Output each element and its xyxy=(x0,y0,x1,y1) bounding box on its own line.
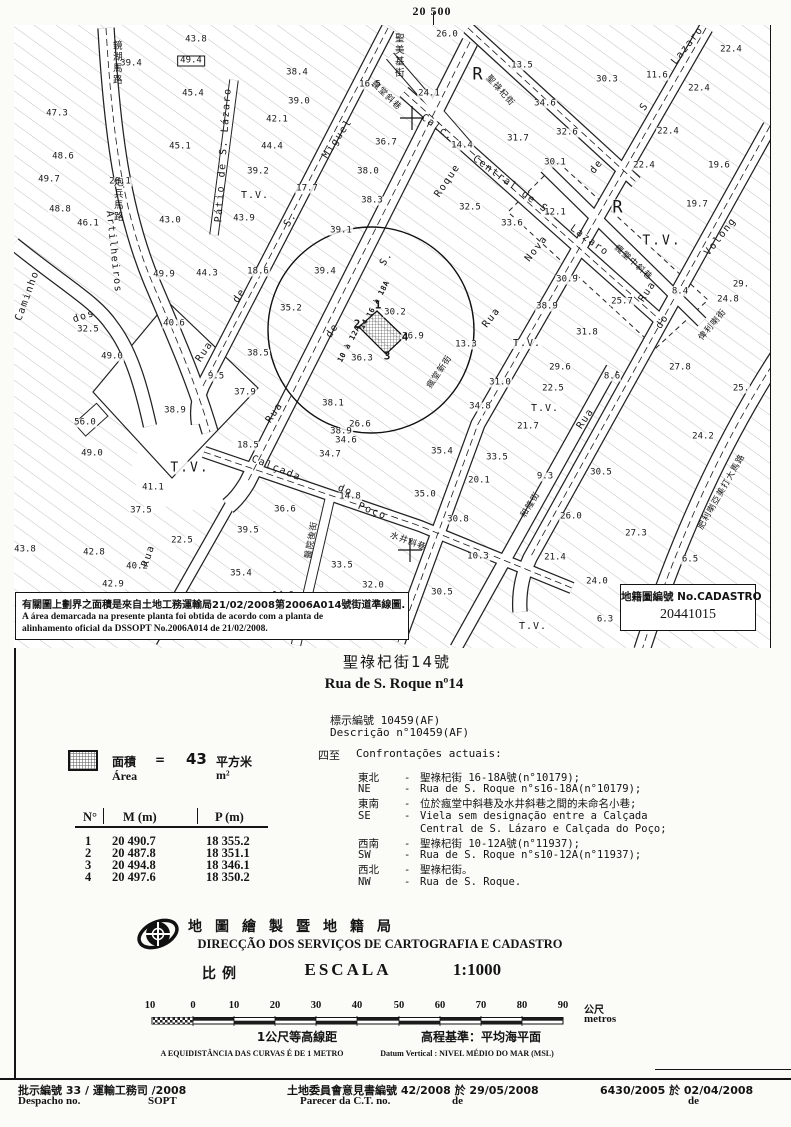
dscc-logo xyxy=(136,914,180,958)
agency-name-pt: DIRECÇÃO DOS SERVIÇOS DE CARTOGRAFIA E C… xyxy=(198,937,563,952)
footer-right-rule xyxy=(655,1069,791,1070)
parecer-label-pt: Parecer da C.T. no. xyxy=(300,1095,390,1107)
datum-note-zh: 高程基準：平均海平面 xyxy=(421,1028,541,1045)
cadastral-plan-sheet: { "frame": {"grid_top": "20 500", "grid_… xyxy=(0,0,791,1127)
scalebar-tick: 10 xyxy=(229,1000,240,1011)
confrontation-row: SW-Rua de S. Roque n°s10-12A(n°11937); xyxy=(358,849,778,862)
page-title-pt: Rua de S. Roque nº14 xyxy=(325,676,464,693)
footer-rule xyxy=(0,1078,791,1080)
confrontation-row: 西南-聖祿杞街 10-12A號(n°11937); xyxy=(358,836,778,849)
cadastro-number-box: 地籍圖編號 No.CADASTRO 20441015 xyxy=(620,584,756,631)
cadastro-label: 地籍圖編號 No.CADASTRO xyxy=(621,589,755,604)
note-line-pt2: alinhamento oficial da DSSOPT No.2006A01… xyxy=(22,623,402,635)
legend-unit-pt: m² xyxy=(216,768,230,783)
scalebar-tick: 40 xyxy=(352,1000,363,1011)
confrontation-row: 東北-聖祿杞街 16-18A號(n°10179); xyxy=(358,770,778,783)
scalebar-tick: 70 xyxy=(476,1000,487,1011)
legend-area-pt: Área xyxy=(112,769,137,784)
contour-note-zh: 1公尺等高線距 xyxy=(257,1028,337,1045)
process-ref-de: de xyxy=(688,1095,699,1107)
confrontation-row: 東南-位於瘋堂中斜巷及水井斜巷之間的未命名小巷; xyxy=(358,796,778,809)
despacho-label-pt: Despacho no. xyxy=(18,1095,80,1107)
legend-area-zh: 面積 xyxy=(112,753,136,770)
cadastro-number: 20441015 xyxy=(621,607,755,623)
confrontations-list: 東北-聖祿杞街 16-18A號(n°10179); NE-Rua de S. R… xyxy=(358,770,778,889)
scalebar-tick: 20 xyxy=(270,1000,281,1011)
page-title-zh: 聖祿杞街14號 xyxy=(343,651,451,672)
descricao-pt: Descrição n°10459(AF) xyxy=(330,726,469,739)
scalebar-tick: 90 xyxy=(558,1000,569,1011)
confrontation-row: SE-Viela sem designação entre a Calçada xyxy=(358,810,778,823)
confrontation-row: 西北-聖祿杞街。 xyxy=(358,862,778,875)
confrontation-row: NE-Rua de S. Roque n°s16-18A(n°10179); xyxy=(358,783,778,796)
datum-note-pt: Datum Vertical : NIVEL MÉDIO DO MAR (MSL… xyxy=(380,1049,554,1058)
confrontation-row: Central de S. Lázaro e Calçada do Poço; xyxy=(358,823,778,836)
scalebar-tick: 50 xyxy=(394,1000,405,1011)
confrontation-row: NW-Rua de S. Roque. xyxy=(358,876,778,889)
scalebar-tick: 30 xyxy=(311,1000,322,1011)
area-hatch-swatch xyxy=(68,750,98,771)
grid-coordinate-north: 20 500 xyxy=(413,4,452,19)
map-linework xyxy=(14,25,770,648)
legend-equals: = xyxy=(155,753,165,767)
parecer-de: de xyxy=(452,1095,463,1107)
scalebar-tick: 60 xyxy=(435,1000,446,1011)
cadastral-map xyxy=(14,25,770,648)
col-header-m: M (m) xyxy=(123,810,157,825)
scale-label-zh: 比例 xyxy=(202,963,242,983)
agency-name-zh: 地圖繪製暨地籍局 xyxy=(188,916,404,936)
process-ref-number: 6430/2005 於 02/04/2008 xyxy=(600,1082,753,1098)
legend-area-value: 43 xyxy=(186,750,207,768)
scalebar-tick: 80 xyxy=(517,1000,528,1011)
scalebar-unit-pt: metros xyxy=(584,1013,616,1025)
col-header-p: P (m) xyxy=(215,810,244,825)
despacho-org: SOPT xyxy=(148,1095,177,1107)
note-line-zh: 有關圖上劃界之面積是來自土地工務運輸局21/02/2008第2006A014號街… xyxy=(22,596,402,611)
scalebar-tick: 0 xyxy=(190,1000,195,1011)
confrontations-heading-zh: 四至 xyxy=(318,747,340,763)
scale-value: 1:1000 xyxy=(453,960,501,980)
alignment-note-box: 有關圖上劃界之面積是來自土地工務運輸局21/02/2008第2006A014號街… xyxy=(15,592,409,640)
note-line-pt1: A área demarcada na presente planta foi … xyxy=(22,611,402,623)
scale-label-pt: ESCALA xyxy=(305,960,392,980)
confrontations-heading-pt: Confrontações actuais: xyxy=(356,747,502,760)
col-header-point: N° xyxy=(83,810,97,825)
contour-note-pt: A EQUIDISTÂNCIA DAS CURVAS É DE 1 METRO xyxy=(161,1049,344,1058)
scalebar-tick: 10 xyxy=(145,1000,156,1011)
